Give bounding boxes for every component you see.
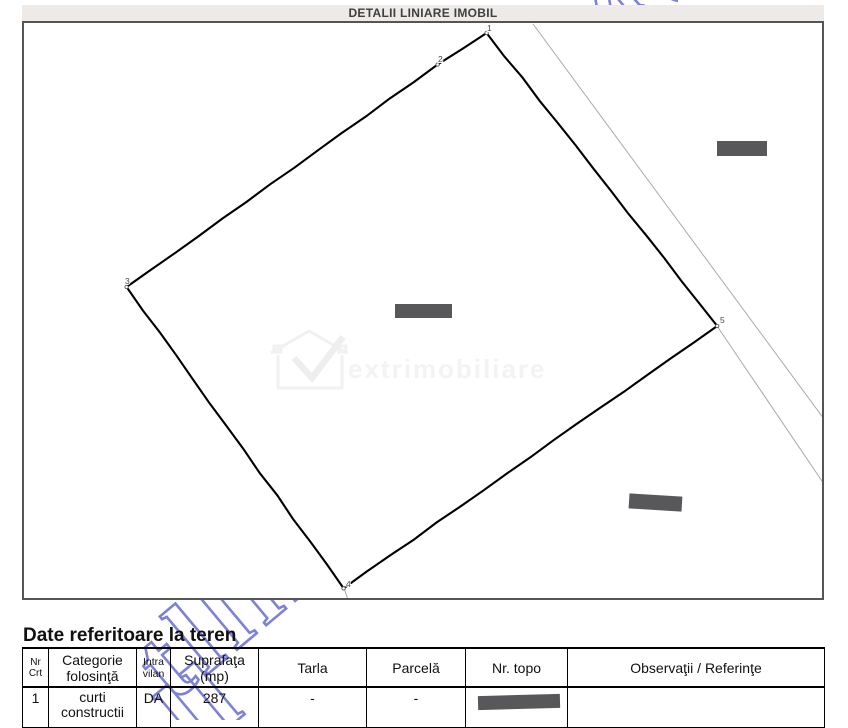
svg-text:3: 3	[125, 276, 130, 286]
svg-text:4: 4	[346, 579, 351, 589]
svg-text:5: 5	[720, 315, 725, 325]
svg-text:1: 1	[487, 23, 492, 33]
svg-text:extrimobiliare: extrimobiliare	[348, 354, 547, 384]
svg-text:2: 2	[438, 54, 443, 64]
